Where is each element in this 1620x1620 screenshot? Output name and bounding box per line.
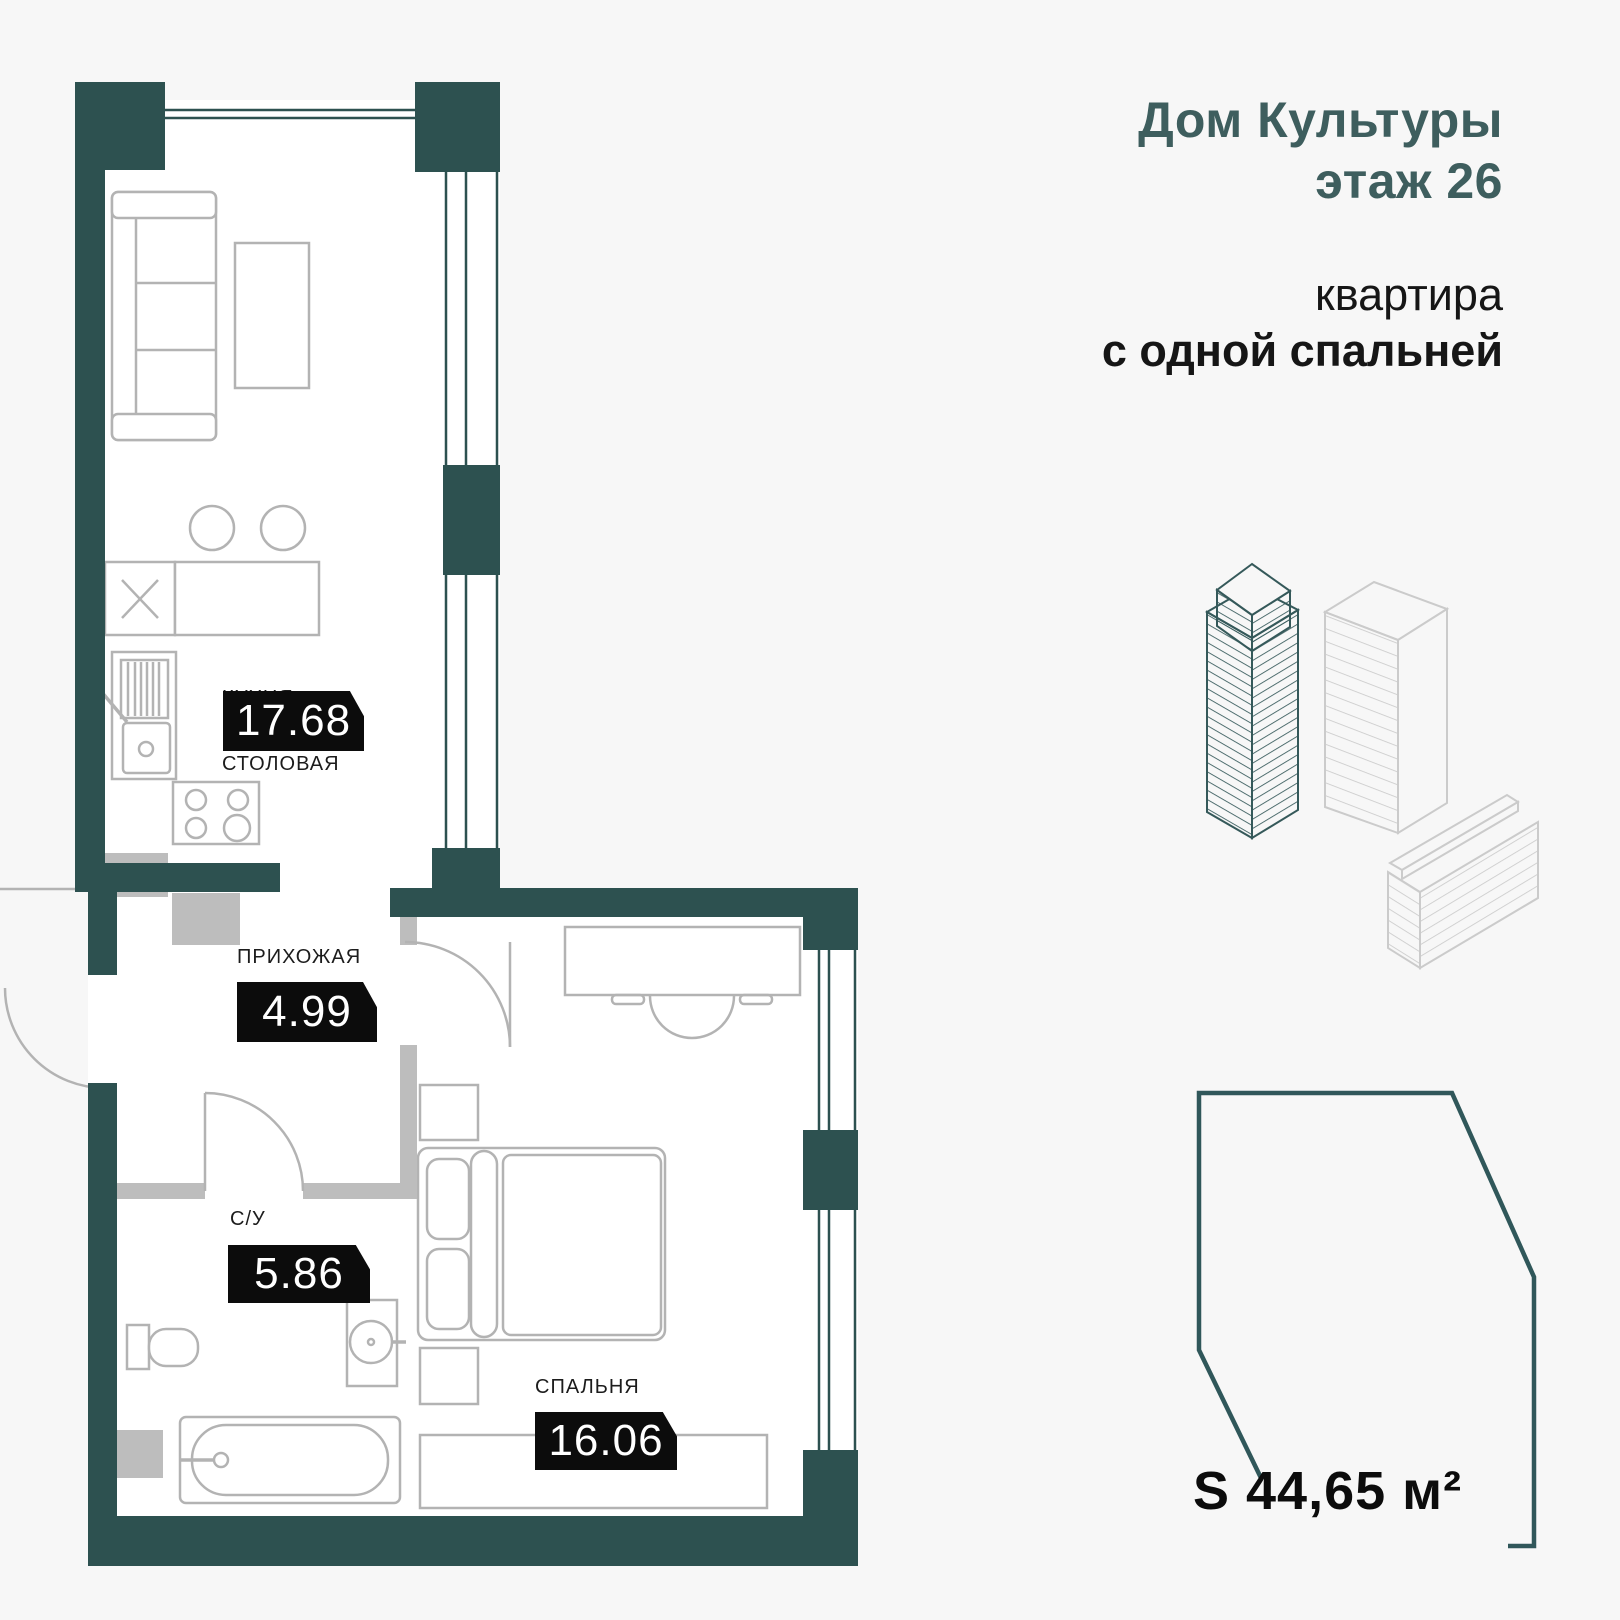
kitchen-area-badge: 17.68	[223, 691, 364, 751]
nightstand	[420, 1085, 478, 1140]
washbasin	[347, 1300, 406, 1386]
floor-label: этаж 26	[1138, 151, 1503, 212]
hallway-label: ПРИХОЖАЯ	[237, 946, 361, 968]
building-secondary	[1325, 582, 1447, 833]
kitchen-cabinet	[105, 562, 175, 635]
buildings-illustration	[1150, 535, 1610, 980]
kitchen-counter	[175, 562, 319, 635]
bathroom-area-badge: 5.86	[228, 1245, 370, 1303]
toilet	[127, 1325, 198, 1369]
apartment-plan-poster: КУХНЯ- СТОЛОВАЯ 17.68 ПРИХОЖАЯ 4.99 С/У …	[0, 0, 1620, 1620]
bedroom-label: СПАЛЬНЯ	[535, 1376, 640, 1398]
building-highlighted	[1207, 564, 1298, 838]
sofa	[112, 192, 216, 440]
hallway-wardrobe	[172, 893, 240, 945]
bath-stub-wall	[117, 1430, 163, 1478]
project-title: Дом Культуры этаж 26	[1138, 90, 1503, 212]
kitchen-sink	[100, 652, 176, 779]
nightstand	[420, 1348, 478, 1404]
coffee-table	[235, 243, 309, 388]
apartment-type: квартира с одной спальней	[1102, 267, 1503, 379]
floor-plan	[0, 0, 900, 1620]
total-area: S 44,65 м²	[1193, 1460, 1462, 1522]
bathtub	[180, 1417, 400, 1503]
hallway-area-badge: 4.99	[237, 982, 377, 1042]
bedroom-area-badge: 16.06	[535, 1412, 677, 1470]
bathroom-label: С/У	[230, 1208, 266, 1230]
building-name: Дом Культуры	[1138, 90, 1503, 151]
bed	[418, 1148, 665, 1340]
